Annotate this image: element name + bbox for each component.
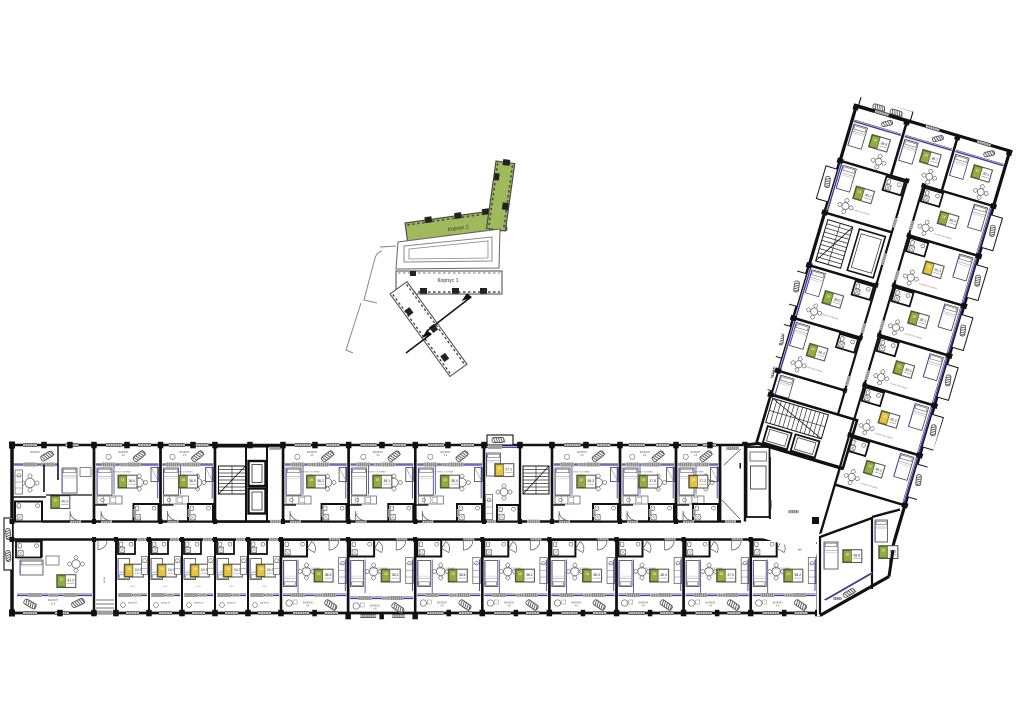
svg-text:1К: 1К [443, 478, 447, 482]
svg-text:КУХНЯ-ГОСТИНАЯ: КУХНЯ-ГОСТИНАЯ [435, 471, 454, 474]
svg-text:24.3: 24.3 [135, 568, 142, 572]
svg-text:КУХНЯ-ГОСТИНАЯ: КУХНЯ-ГОСТИНАЯ [572, 471, 591, 474]
svg-text:37.8: 37.8 [649, 479, 656, 483]
svg-text:38.8: 38.8 [853, 554, 860, 558]
svg-text:КУХНЯ-ГОСТИНАЯ: КУХНЯ-ГОСТИНАЯ [368, 471, 387, 474]
svg-text:38.4: 38.4 [660, 573, 667, 577]
svg-text:38.2: 38.2 [317, 479, 324, 483]
svg-text:1К: 1К [518, 572, 522, 576]
svg-text:1К: 1К [317, 572, 321, 576]
svg-text:38.6: 38.6 [128, 479, 135, 483]
svg-text:БАЛКОН: БАЛКОН [30, 451, 40, 454]
svg-text:24.3: 24.3 [168, 568, 175, 572]
svg-text:Корпус 1: Корпус 1 [437, 278, 458, 284]
svg-text:37.9: 37.9 [727, 573, 734, 577]
svg-text:КУХНЯ-ГОСТИНАЯ: КУХНЯ-ГОСТИНАЯ [113, 471, 132, 474]
svg-text:24.3: 24.3 [267, 568, 274, 572]
svg-text:1К: 1К [259, 567, 263, 571]
svg-text:41.2: 41.2 [67, 579, 74, 583]
svg-text:27.1: 27.1 [505, 468, 512, 472]
svg-text:1К: 1К [60, 577, 64, 581]
svg-text:1К: 1К [882, 548, 886, 552]
svg-text:1К: 1К [652, 572, 656, 576]
svg-text:БАЛКОН: БАЛКОН [128, 602, 137, 605]
svg-text:38.2: 38.2 [392, 573, 399, 577]
svg-text:БАЛКОН: БАЛКОН [260, 602, 269, 605]
svg-text:1К: 1К [384, 572, 388, 576]
svg-text:КУХНЯ-ГОСТИНАЯ: КУХНЯ-ГОСТИНАЯ [302, 471, 321, 474]
svg-text:1К: 1К [787, 572, 791, 576]
svg-text:1К: 1К [54, 498, 58, 502]
svg-text:11.6: 11.6 [51, 602, 56, 605]
svg-text:38.1: 38.1 [383, 479, 390, 483]
svg-text:1К: 1К [121, 478, 125, 482]
svg-text:1К: 1К [846, 552, 850, 556]
svg-text:1К: 1К [498, 466, 502, 470]
svg-text:24.3: 24.3 [201, 568, 208, 572]
svg-text:38.4: 38.4 [451, 479, 458, 483]
svg-text:27.2: 27.2 [699, 479, 706, 483]
svg-text:1К: 1К [160, 567, 164, 571]
svg-text:1К: 1К [642, 478, 646, 482]
svg-text:38.6: 38.6 [459, 573, 466, 577]
svg-text:24.3: 24.3 [234, 568, 241, 572]
svg-text:38.3: 38.3 [587, 479, 594, 483]
svg-text:1К: 1К [692, 478, 696, 482]
svg-text:1К: 1К [719, 572, 723, 576]
svg-text:38.5: 38.5 [189, 479, 196, 483]
svg-text:ВХОД: ВХОД [104, 577, 106, 583]
svg-text:1К: 1К [181, 478, 185, 482]
svg-text:38.3: 38.3 [593, 573, 600, 577]
svg-text:38.2: 38.2 [794, 573, 801, 577]
svg-text:1К: 1К [376, 478, 380, 482]
svg-text:1К: 1К [226, 567, 230, 571]
svg-text:1К: 1К [580, 478, 584, 482]
svg-text:БАЛКОН: БАЛКОН [194, 602, 203, 605]
svg-text:40.3: 40.3 [61, 500, 68, 504]
svg-text:38.1: 38.1 [526, 573, 533, 577]
svg-text:1К: 1К [309, 478, 313, 482]
svg-text:1К: 1К [585, 572, 589, 576]
svg-text:БАЛКОН: БАЛКОН [227, 602, 236, 605]
svg-text:БАЛКОН: БАЛКОН [161, 602, 170, 605]
svg-text:1К: 1К [193, 567, 197, 571]
svg-text:38.5: 38.5 [325, 573, 332, 577]
svg-text:1К: 1К [451, 572, 455, 576]
svg-text:1К: 1К [127, 567, 131, 571]
